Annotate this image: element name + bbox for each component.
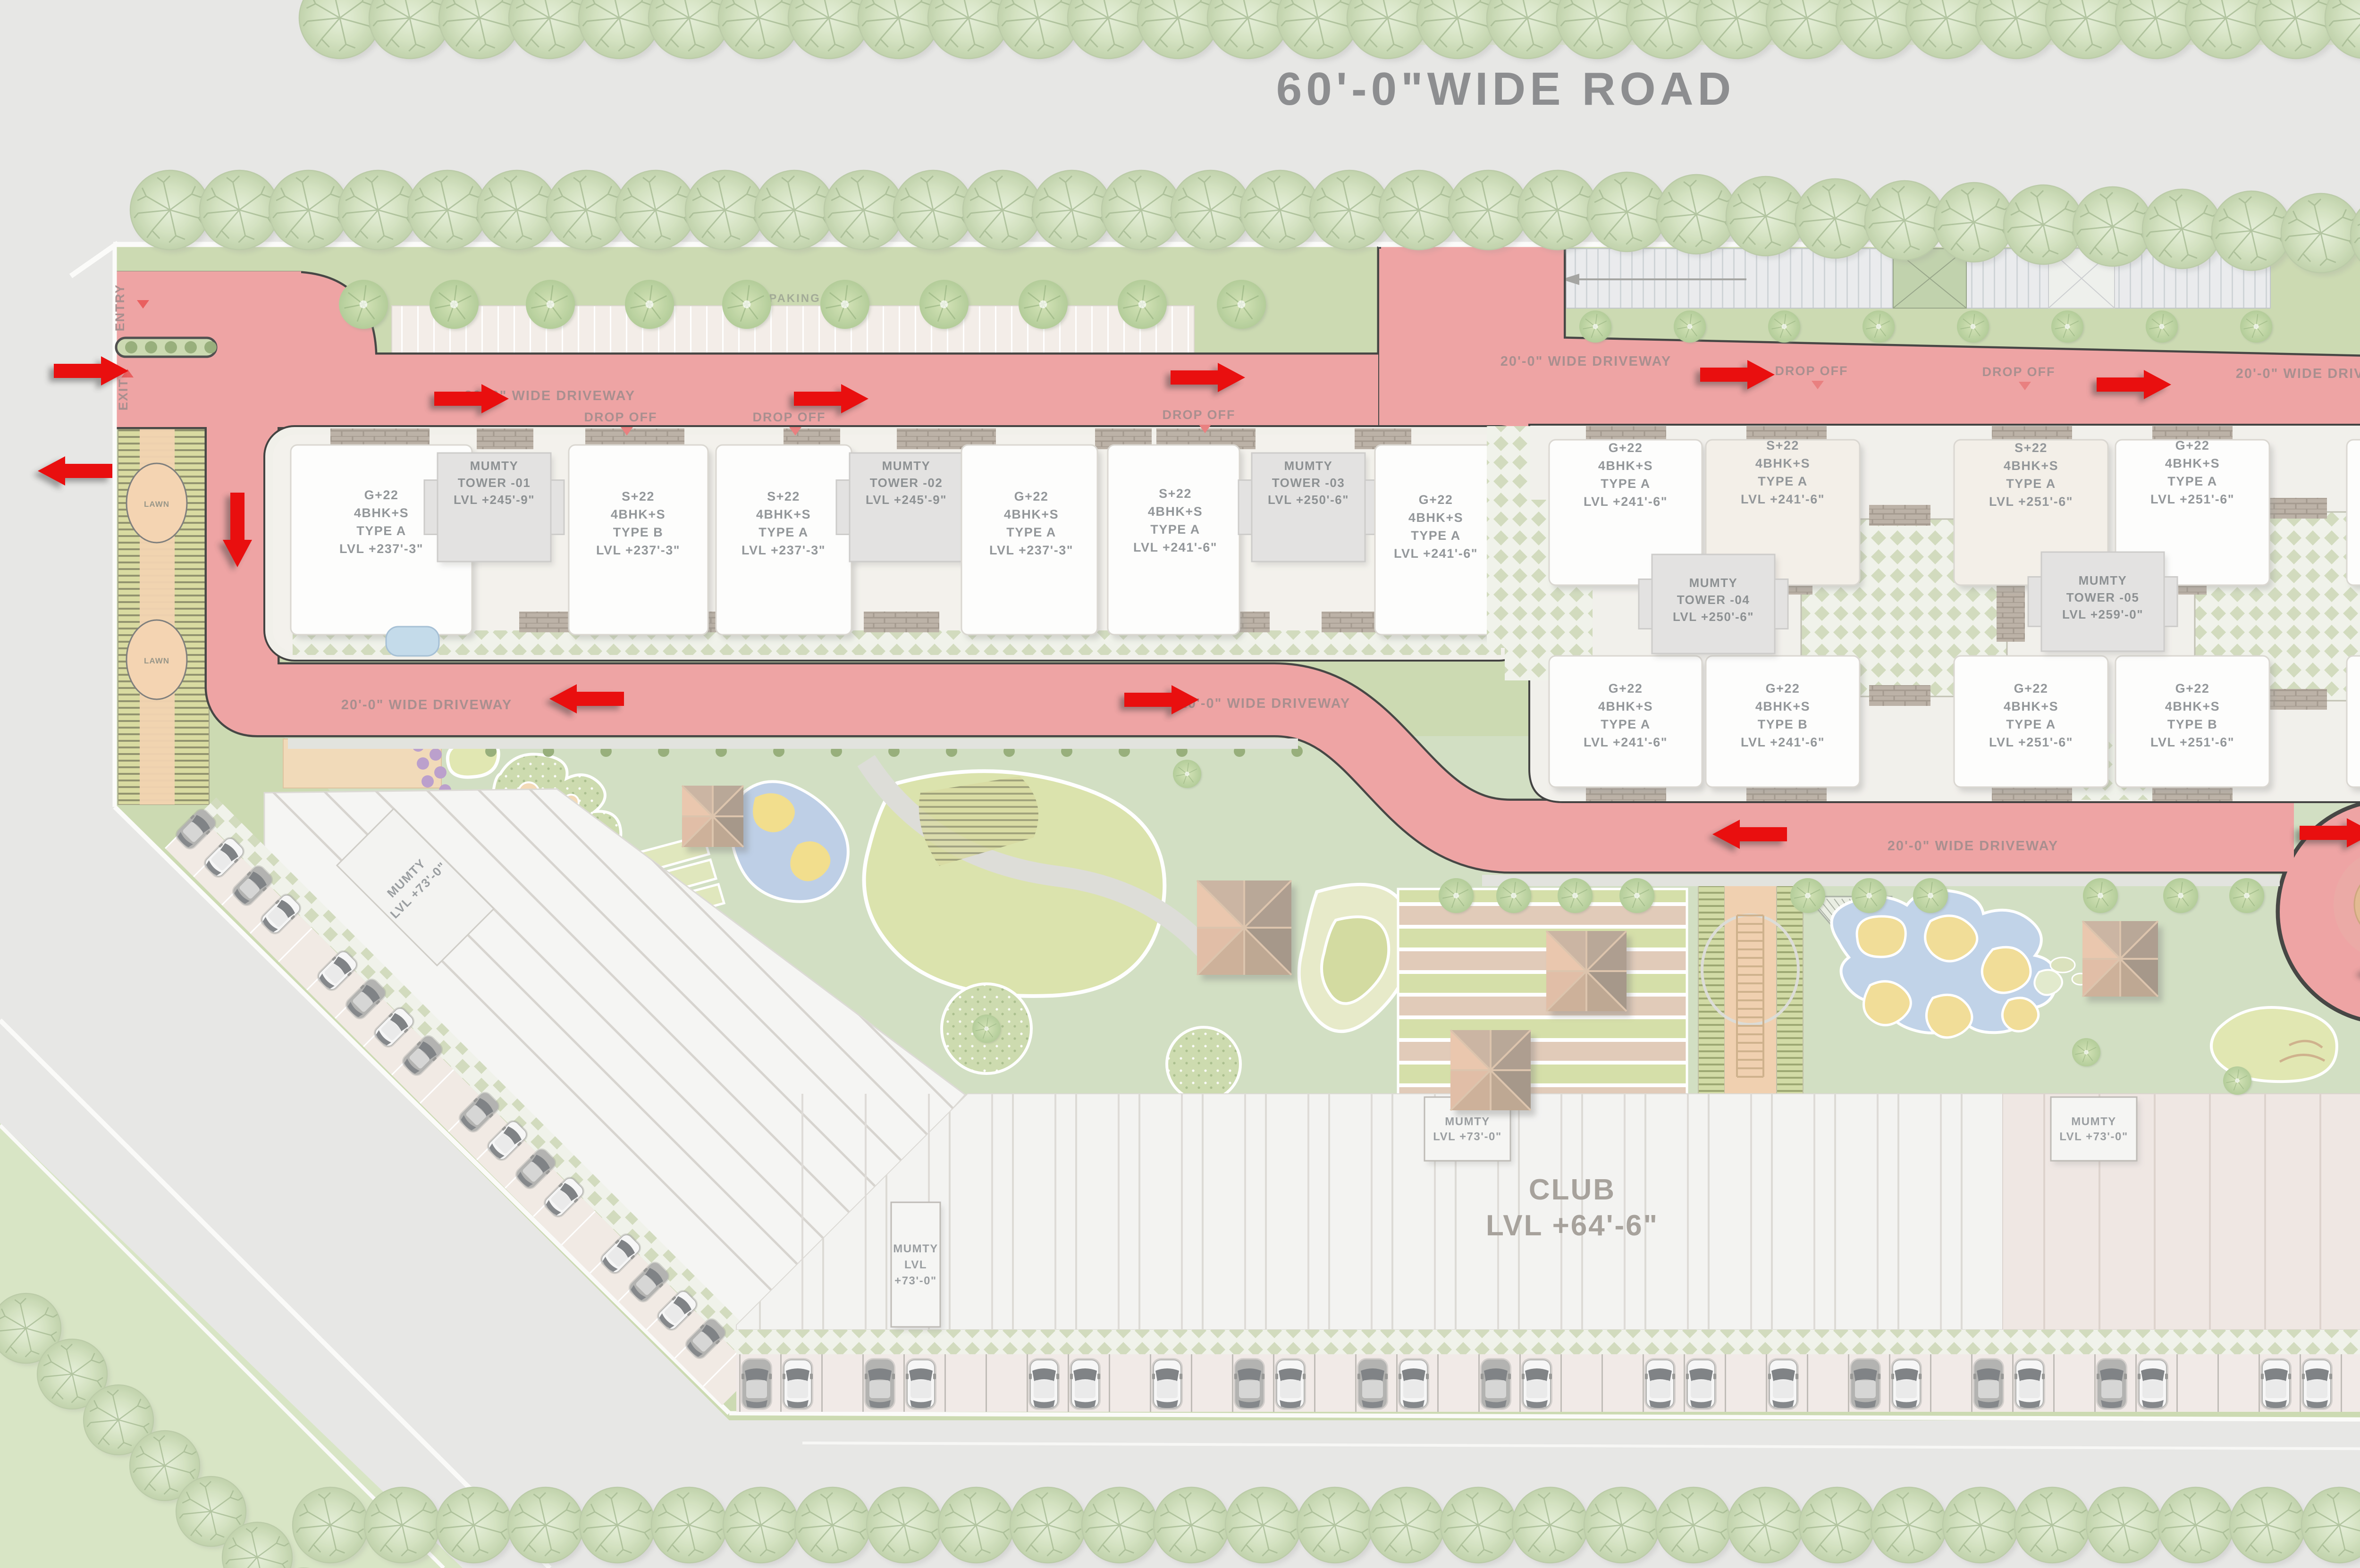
svg-text:DROP OFF: DROP OFF — [752, 410, 826, 424]
svg-text:DROP OFF: DROP OFF — [1982, 365, 2055, 379]
svg-text:DROP OFF: DROP OFF — [584, 410, 657, 424]
svg-text:60'-0"WIDE ROAD: 60'-0"WIDE ROAD — [1276, 63, 1736, 115]
svg-text:DROP OFF: DROP OFF — [1775, 364, 1848, 378]
svg-text:20'-0" WIDE DRIVEWAY: 20'-0" WIDE DRIVEWAY — [1180, 696, 1351, 711]
svg-text:20'-0" WIDE DRIVEWAY: 20'-0" WIDE DRIVEWAY — [1500, 354, 1672, 369]
svg-text:20'-0" WIDE DRIVEWAY: 20'-0" WIDE DRIVEWAY — [2236, 366, 2360, 381]
svg-text:EXIT: EXIT — [116, 378, 130, 411]
svg-text:20'-0" WIDE DRIVEWAY: 20'-0" WIDE DRIVEWAY — [1888, 839, 2059, 854]
svg-text:ENTRY: ENTRY — [113, 284, 127, 332]
svg-text:20'-0" WIDE DRIVEWAY: 20'-0" WIDE DRIVEWAY — [341, 697, 513, 713]
svg-text:DROP OFF: DROP OFF — [1162, 408, 1235, 422]
